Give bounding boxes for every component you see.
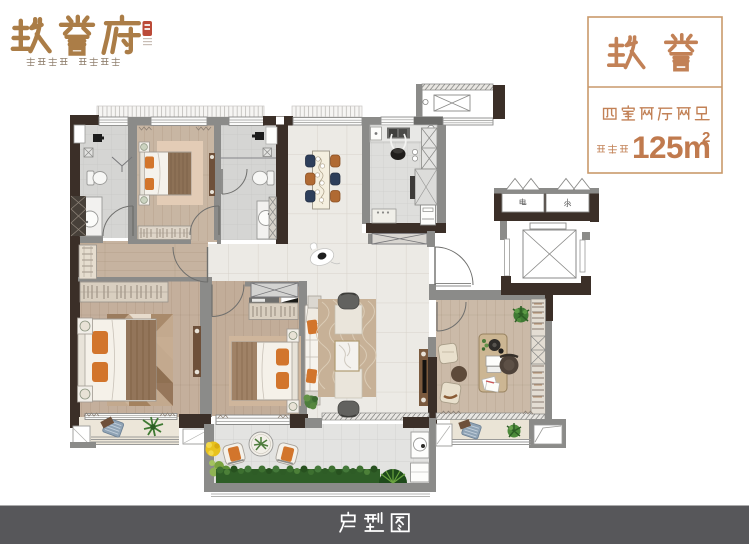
svg-text:125m: 125m [632, 129, 711, 165]
svg-text:2: 2 [702, 129, 710, 146]
